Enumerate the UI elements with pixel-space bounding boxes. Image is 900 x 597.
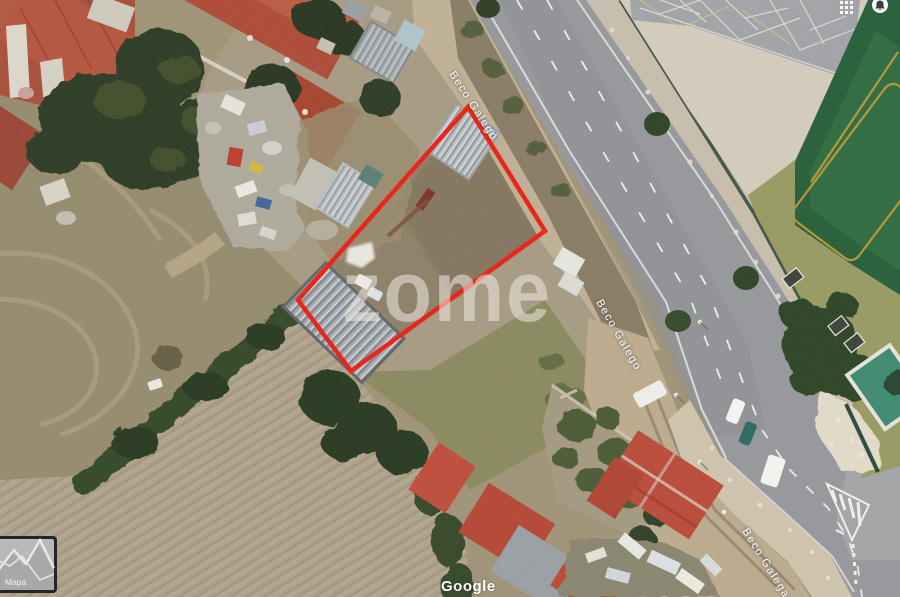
svg-text:Google: Google [441,578,496,595]
svg-text:zome: zome [342,244,552,340]
svg-text:Mapa: Mapa [5,577,27,587]
